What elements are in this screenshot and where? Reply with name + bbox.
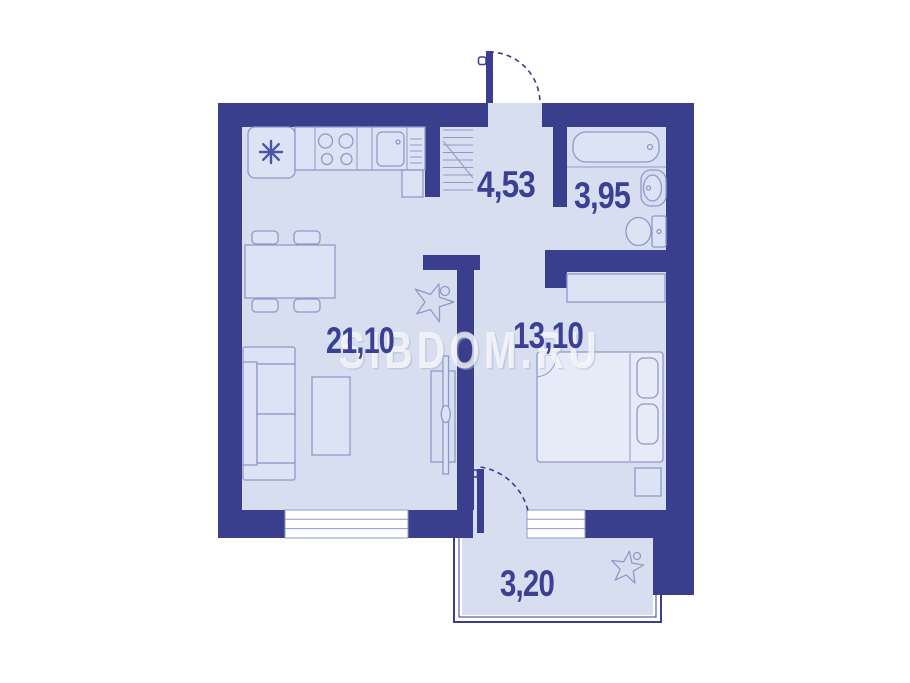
left-wall xyxy=(218,127,242,538)
floor-plan-canvas: SIBDOM.RU SIBDOM.RU 4,53 3,95 21,10 13,1… xyxy=(0,0,910,683)
kitchen-hallway-partition xyxy=(425,127,440,197)
entrance-door xyxy=(479,51,541,103)
room-label-bathroom: 3,95 xyxy=(574,175,630,216)
toilet-bowl xyxy=(626,218,651,246)
bathroom-left-wall xyxy=(553,127,567,207)
bedroom-wall-stub xyxy=(545,250,567,288)
toilet-tank xyxy=(652,216,666,247)
room-label-living-kitchen: 21,10 xyxy=(326,320,394,361)
chair xyxy=(294,299,320,312)
coffee-table xyxy=(312,377,350,455)
snowflake-icon xyxy=(260,141,282,163)
wardrobe xyxy=(567,274,665,302)
balcony-door-leaf xyxy=(477,469,484,533)
chair xyxy=(252,299,278,312)
bedroom-balcony-window xyxy=(527,510,585,538)
living-room-window xyxy=(285,510,408,538)
pillow xyxy=(637,358,658,398)
pillow xyxy=(637,404,658,444)
nightstand xyxy=(635,468,661,496)
door-handle-icon xyxy=(479,57,487,65)
entrance-door-swing-arc xyxy=(489,52,540,103)
fridge xyxy=(248,127,295,178)
bottom-wall-segment-3 xyxy=(585,510,666,538)
living-bedroom-partition xyxy=(457,255,474,510)
right-wall xyxy=(666,127,694,538)
chair xyxy=(294,231,320,244)
balcony-floor xyxy=(462,538,653,615)
sofa xyxy=(243,347,295,480)
entrance-threshold xyxy=(488,103,542,127)
right-wall-lower-block xyxy=(653,538,694,595)
top-wall-right-segment xyxy=(542,103,694,127)
bottom-wall-segment-2 xyxy=(408,510,473,538)
floor-plan-page: SIBDOM.RU SIBDOM.RU 4,53 3,95 21,10 13,1… xyxy=(0,0,910,683)
top-wall-left-segment xyxy=(218,103,488,127)
room-label-hallway: 4,53 xyxy=(477,164,535,205)
counter-extension xyxy=(402,170,423,197)
bottom-wall-segment-1 xyxy=(218,510,285,538)
entrance-door-leaf xyxy=(486,51,493,103)
toilet xyxy=(626,216,666,247)
chair xyxy=(252,231,278,244)
room-label-balcony: 3,20 xyxy=(500,563,554,604)
room-label-bedroom: 13,10 xyxy=(513,315,583,356)
